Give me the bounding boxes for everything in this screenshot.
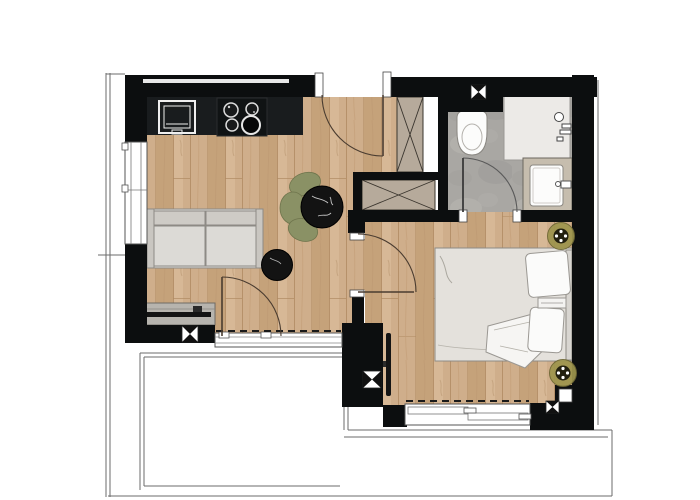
wall-living-bottom <box>125 325 215 343</box>
wall-top-right <box>391 77 597 97</box>
living-terrace-window <box>215 331 342 347</box>
burner-icon <box>242 116 260 134</box>
tv-icon <box>386 333 391 396</box>
cooktop <box>217 98 267 136</box>
dining-table <box>301 186 343 228</box>
wall-inset-line <box>143 79 289 83</box>
bedroom-door-jamb-bottom <box>350 290 364 297</box>
hall-floor <box>353 97 397 172</box>
tv-icon <box>147 312 211 317</box>
sliding-sash <box>408 407 468 414</box>
section-marker-icon <box>546 401 559 413</box>
wall-closet-top <box>353 172 447 180</box>
section-marker-icon <box>363 371 381 388</box>
toilet <box>457 111 487 155</box>
wall-bedroom-north-right <box>521 210 572 222</box>
bedroom-sliding-window <box>405 401 531 425</box>
wall-top-left <box>125 75 322 97</box>
shower-area <box>504 95 570 160</box>
double-bed <box>435 248 572 368</box>
window-handle-icon <box>122 185 128 192</box>
wall-bedroom-doorway-top <box>348 210 365 233</box>
wall-step-stub <box>352 297 364 323</box>
wall-niche <box>559 389 572 402</box>
floor-plan-canvas <box>0 0 700 500</box>
wall-closet-left <box>353 180 362 210</box>
window-handle-icon <box>219 332 229 338</box>
window-handle-icon <box>261 332 271 338</box>
burner-icon <box>246 103 258 115</box>
tv-sideboard <box>140 303 215 325</box>
left-wall-window <box>122 142 147 244</box>
pillow <box>528 307 565 353</box>
tall-wardrobe <box>397 97 423 172</box>
ceiling-light-icon <box>548 223 575 250</box>
entry-jamb-right <box>383 72 391 97</box>
wall-bedroom-bottom-left <box>383 405 407 427</box>
burner-icon <box>226 119 238 131</box>
vanity-sink <box>523 158 572 212</box>
ceiling-light-icon <box>550 360 577 387</box>
faucet-icon <box>561 181 571 188</box>
closet-wardrobe <box>362 180 435 210</box>
wall-step-block <box>342 323 383 407</box>
section-marker-icon <box>471 85 486 99</box>
entry-jamb-left <box>315 73 323 97</box>
burner-icon <box>224 103 238 117</box>
window-handle-icon <box>519 414 531 419</box>
window-handle-icon <box>122 143 128 150</box>
coffee-table <box>262 250 293 281</box>
sofa <box>147 209 263 268</box>
section-marker-icon <box>182 326 198 342</box>
doorway-threshold-floor <box>352 239 365 290</box>
wall-left-upper <box>125 97 147 142</box>
floor-plan-page <box>0 0 700 500</box>
pillow <box>525 250 571 297</box>
wall-bathroom-left <box>438 97 448 212</box>
window-handle-icon <box>464 408 476 413</box>
